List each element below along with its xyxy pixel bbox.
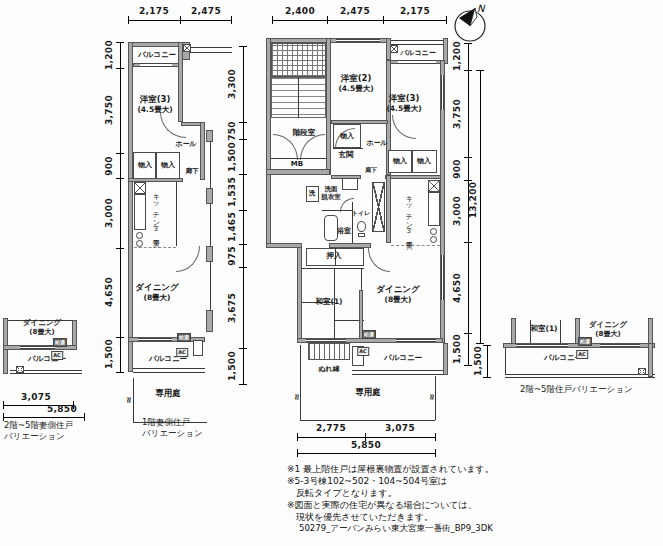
heater-badge: 給湯 [362,330,376,339]
water-heater-unit [372,182,385,232]
window [600,344,640,347]
garden-label: 専用庭 [155,389,181,399]
dim-label: 3,075 [385,423,415,433]
dim-line [120,42,121,372]
wall [266,169,330,175]
room-label-oshiire: 押入 [327,252,342,261]
dim-tick [239,210,247,211]
garden-fence [300,345,301,420]
wall [385,175,441,179]
dim-label: 2,475 [191,6,221,16]
room-label-tatami: 和室(1) [315,298,342,307]
kitchen-counter [428,192,440,226]
room-size: (4.5畳大) [137,106,172,115]
dim-tick [239,139,247,140]
garden-label: 専用庭 [355,388,381,398]
document-id: 50279_アーバンみらい東大宮東一番街_BP9_3DK [299,522,493,534]
room-label-entrance: 玄関 [339,151,354,160]
railing-line [133,372,205,373]
meter-box-icon [390,45,398,53]
door-arc [160,112,186,138]
dim-label: 2,175 [139,6,169,16]
dim-line [480,70,481,343]
dim-tick [483,377,491,378]
wall [128,42,133,372]
dim-tick [116,337,124,338]
railing-line [10,373,82,374]
dim-tick [327,16,328,24]
stair-rail [298,77,299,118]
dim-tick [239,122,247,123]
dim-label: 1,200 [104,40,114,70]
wall [386,175,391,243]
wall [206,310,213,332]
room-size: (8畳大) [384,296,411,305]
door-arc [368,248,390,272]
note-line: ※5-3号棟102~502・104~504号室は [287,475,447,487]
wall [200,122,205,180]
room-label-dining: ダイニング [589,321,627,330]
room-label-dining: ダイニング [135,283,179,293]
dim-label: 1,500 [227,142,237,172]
kitchen-name: キッチン [152,188,160,224]
kitchen-size: 〔3畳大〕 [152,224,160,237]
dim-label: 2,400 [285,6,315,16]
ac-badge: AC [51,351,63,360]
dim-tick [297,433,298,441]
room-label-nureen: ぬれ縁 [318,365,339,373]
dim-label: 2,475 [340,6,370,16]
dim-label: 2,775 [316,423,346,433]
railing-line [352,374,448,375]
ac-badge: AC [576,350,588,359]
compass-icon: N [450,2,492,44]
dim-label: 1,500 [104,339,114,369]
room-label-kitchen: キッチン〔3畳大〕 [403,190,413,252]
window [306,339,346,342]
dim-label: 4,650 [452,273,462,303]
plan-caption: バリエーション [142,428,203,439]
dim-label: 3,000 [452,196,462,226]
burner-icon [136,232,143,239]
window [138,338,172,341]
dim-tick [446,16,447,24]
dim-line [297,453,436,454]
window [336,39,380,42]
kitchen-size: 〔3畳大〕 [405,226,413,239]
bathtub [324,215,338,241]
meter-box-icon [183,44,191,52]
drain-box-icon [16,366,24,373]
burner-icon [430,236,437,243]
kitchen-name: キッチン [405,190,413,226]
dim-tick [239,348,247,349]
dim-tick [435,433,436,441]
dim-label: 3,750 [104,95,114,125]
dim-tick [128,16,129,24]
room-label-corridor: 廊下 [365,167,377,174]
railing-line [505,377,655,378]
dim-tick [483,345,491,346]
dim-label: 3,300 [227,69,237,99]
window [441,255,444,300]
room-label-corridor: 廊下 [186,168,199,175]
dim-tick [116,372,124,373]
room-label-closet: 物入 [393,157,407,165]
room-label-washer: 洗 [309,190,316,197]
wall [178,42,183,122]
room-label-balcony: バルコニー [400,49,436,57]
dim-label: 1,500 [227,351,237,381]
heater-badge: 給湯 [578,337,592,346]
railing-line [505,348,506,375]
room-label-closet: 物入 [138,161,152,169]
planter-box [193,340,203,356]
room-label-dining: ダイニング [376,285,420,295]
dim-tick [116,68,124,69]
dim-label: 1,500 [452,334,462,364]
range-hood-icon [134,182,146,194]
ac-badge: AC [176,348,188,357]
dim-tick [239,267,247,268]
wall [206,130,213,142]
door-arc [176,246,200,272]
plan-caption: 2階~5階住戸バリエーション [520,384,633,395]
corridor-edge [210,130,211,330]
room-label-mb: MB [291,160,303,168]
vanity-box [342,178,358,190]
room-size: (8畳大) [595,330,620,338]
dim-line [487,345,488,377]
wall-line [271,158,326,159]
wall-line [361,268,362,292]
dim-tick [464,43,472,44]
wall [511,318,516,345]
wall-line [302,268,364,269]
dim-tick [464,157,472,158]
note-line: 反転タイプとなります。 [296,487,397,499]
wall [326,38,331,175]
dim-tick [116,153,124,154]
railing-line [352,370,448,371]
door-arc [273,134,298,160]
dim-tick [476,343,484,344]
heater-badge: 給湯 [53,338,67,347]
dim-label: 3,750 [452,99,462,129]
dim-tick [464,70,472,71]
dim-tick [297,449,298,457]
range-hood-icon [428,180,440,192]
dim-tick [464,242,472,243]
dim-label: 750 [227,121,237,141]
room-label-hall: ホール [175,140,196,148]
room-size: (4.5畳大) [386,105,421,114]
break-mark: ≈ [292,393,302,401]
burner-icon [430,228,437,235]
dim-label: 900 [452,159,462,179]
dim-line [243,46,244,384]
dim-label: 3,075 [21,392,51,402]
break-mark: ≈ [427,393,437,401]
wall [648,343,653,377]
wall [386,38,391,60]
dim-tick [239,46,247,47]
compass-north-label: N [477,3,486,14]
room-label-toilet: トイレ [352,210,370,217]
room-label-washroom: 脱衣室 [321,194,341,201]
dim-tick [116,42,124,43]
dim-tick [476,70,484,71]
plan-caption: 1階妻側住戸 [142,417,190,428]
break-mark: ≈ [124,396,134,404]
wall-line [176,182,177,246]
plan-caption: バリエーション [4,431,65,442]
ac-badge: AC [357,347,369,356]
burner-icon [136,240,143,247]
drain-box-icon [638,368,646,375]
room-label-tatami: 和室(1) [530,325,557,334]
railing-line [133,368,205,369]
room-label-closet: 物入 [340,132,354,140]
dim-label: 2,175 [400,6,430,16]
railing-line [505,374,655,375]
dim-label: 975 [227,246,237,266]
room-label-bedroom3: 洋室(3) [389,94,420,104]
dim-tick [239,384,247,385]
dim-tick [3,401,4,409]
stair-hatch [271,43,326,77]
room-label-hall: ホール [366,139,387,147]
door-arc [300,134,325,160]
plan-caption: 2階~5階妻側住戸 [4,420,73,431]
wall [297,243,302,343]
window [441,75,444,110]
dim-label: 1,535 [227,177,237,207]
dim-label: 1,465 [227,212,237,242]
dim-tick [180,16,181,24]
wall [206,188,213,204]
room-label-bedroom2: 洋室(2) [341,74,372,84]
wall [206,246,213,262]
dim-tick [272,16,273,24]
wall [266,243,302,248]
wall [648,318,653,345]
note-line: ※図面と実際の住宅が異なる場合については、 [287,499,477,511]
window [398,60,436,64]
floorplan-sheet: { "compass": { "n": "N" }, "left_plan": … [0,0,663,546]
dim-tick [116,178,124,179]
open-boundary [391,245,440,246]
railing-line [190,47,232,48]
window [516,344,568,347]
room-label-closet: 物入 [417,157,431,165]
dim-tick [84,413,85,421]
toilet-bowl [357,221,366,232]
dim-line [297,437,436,438]
window [20,346,55,349]
garden-fence [300,420,435,421]
dim-tick [464,333,472,334]
room-label-balcony: バルコニー [384,354,422,363]
room-label-balcony: バルコニー [138,51,176,60]
dim-label: 900 [104,156,114,176]
door-arc [392,115,416,139]
note-line: ※1 最上階住戸は屋根裏物置が設置されています。 [287,463,494,475]
dim-line [272,20,447,21]
room-label-bath: 浴室 [337,227,351,235]
room-label-dining: ダイニング [23,319,61,328]
dim-tick [464,365,472,366]
wall-line [560,320,561,343]
dim-tick [435,449,436,457]
room-label-kitchen: キッチン〔3畳大〕 [150,188,160,250]
dim-label: 5,850 [47,404,77,414]
room-size: (8畳大) [143,294,170,303]
dim-label: 3,000 [104,198,114,228]
window [396,339,436,342]
room-size: (4.5畳大) [338,85,373,94]
dim-label: 1,500 [473,346,483,376]
window [140,63,172,67]
room-label-stairwell: 階段室 [293,129,316,138]
room-label-bedroom3: 洋室(3) [140,95,171,105]
dim-label: 5,850 [351,440,381,450]
dim-label: 3,675 [227,293,237,323]
nureen-deck [308,343,350,360]
dim-tick [383,16,384,24]
dim-tick [239,244,247,245]
dim-label: 13,200 [468,182,478,219]
railing-line [190,52,232,53]
dim-line [3,417,85,418]
heater-badge: 給湯 [177,333,191,342]
dim-label: 4,650 [104,277,114,307]
kitchen-counter [134,194,146,230]
dim-tick [116,248,124,249]
dim-tick [231,16,232,24]
room-size: (8畳大) [29,328,54,336]
railing-line [388,40,446,41]
room-label-closet: 物入 [161,161,175,169]
toilet-tank [358,233,365,237]
dim-tick [239,174,247,175]
wall [443,343,448,375]
dim-label: 1,200 [452,41,462,71]
